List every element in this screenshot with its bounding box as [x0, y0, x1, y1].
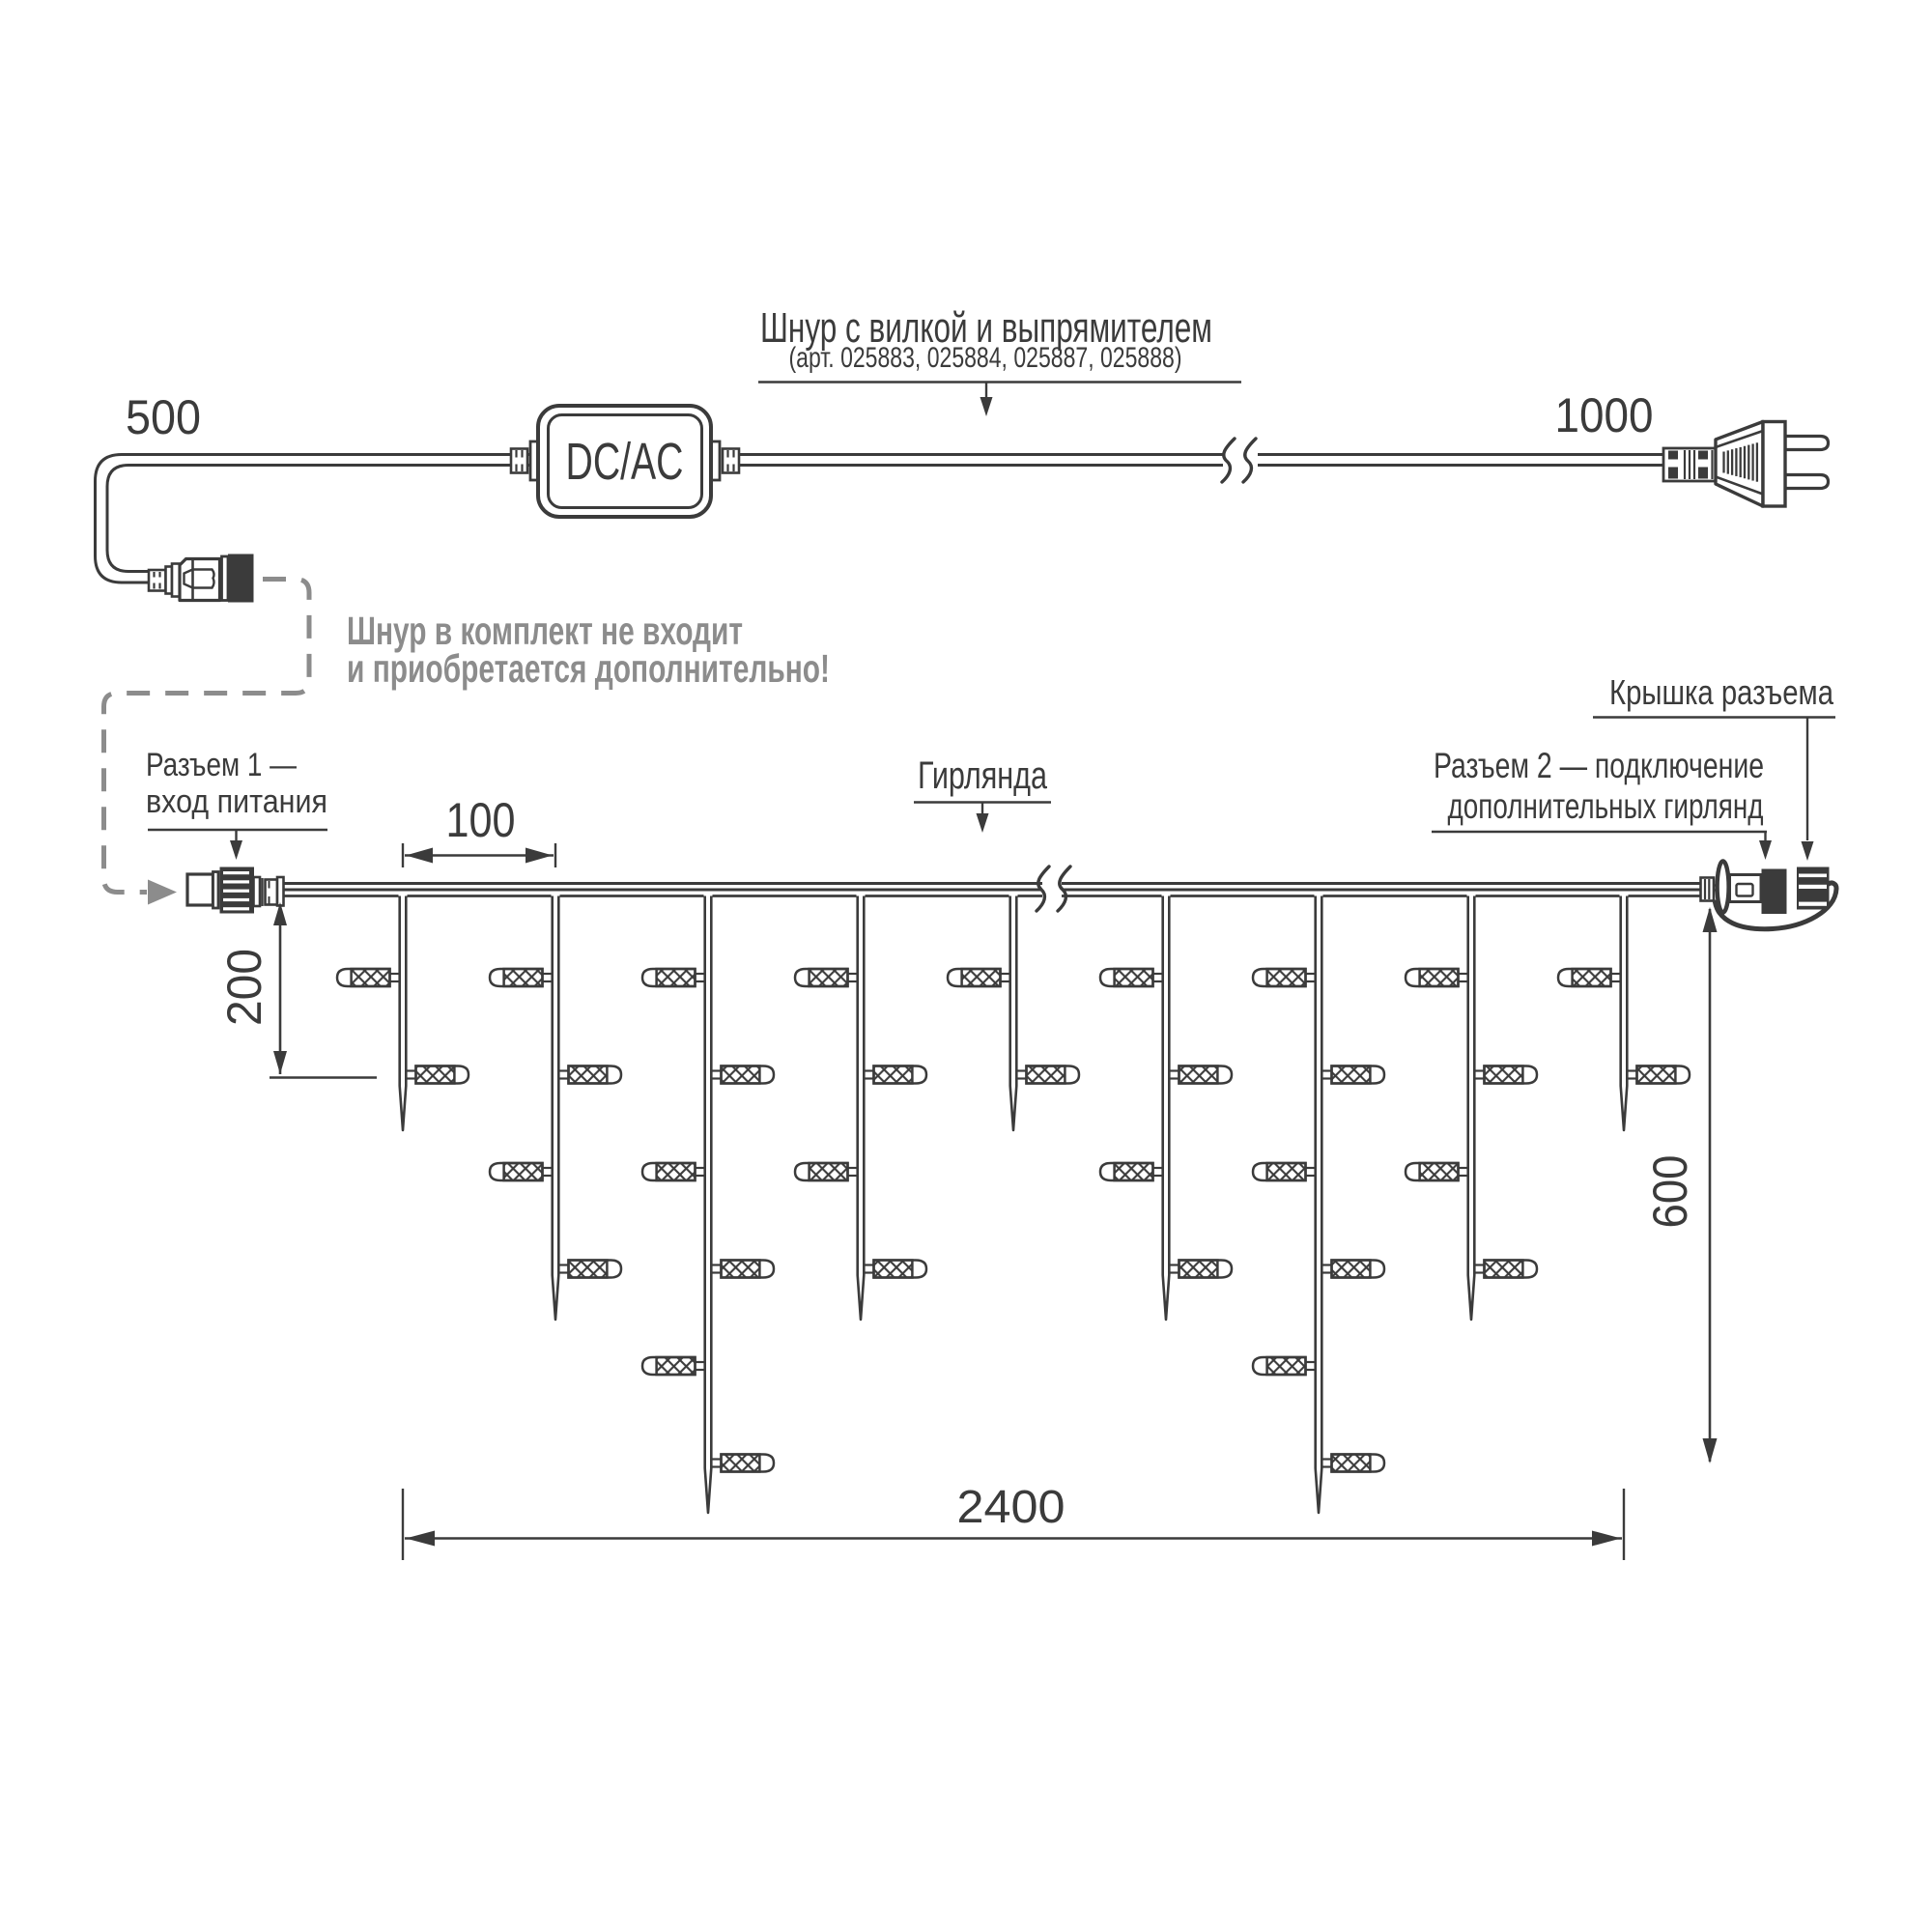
svg-text:(арт. 025883, 025884, 025887,: (арт. 025883, 025884, 025887, 025888) — [789, 342, 1182, 374]
svg-text:Разъем 1 —: Разъем 1 — — [146, 747, 297, 783]
svg-text:вход питания: вход питания — [146, 783, 327, 820]
svg-text:100: 100 — [446, 793, 516, 847]
svg-text:Гирлянда: Гирлянда — [918, 754, 1048, 797]
svg-text:Крышка разъема: Крышка разъема — [1609, 672, 1834, 712]
svg-text:2400: 2400 — [957, 1482, 1065, 1533]
svg-text:500: 500 — [126, 390, 201, 444]
svg-text:600: 600 — [1643, 1155, 1697, 1229]
svg-text:1000: 1000 — [1555, 388, 1654, 442]
svg-text:дополнительных гирлянд: дополнительных гирлянд — [1448, 786, 1764, 826]
svg-text:DC/AC: DC/AC — [566, 433, 684, 491]
svg-text:Разъем 2 — подключение: Разъем 2 — подключение — [1434, 746, 1764, 785]
svg-text:200: 200 — [217, 949, 271, 1026]
svg-text:и приобретается дополнительно!: и приобретается дополнительно! — [347, 646, 830, 691]
